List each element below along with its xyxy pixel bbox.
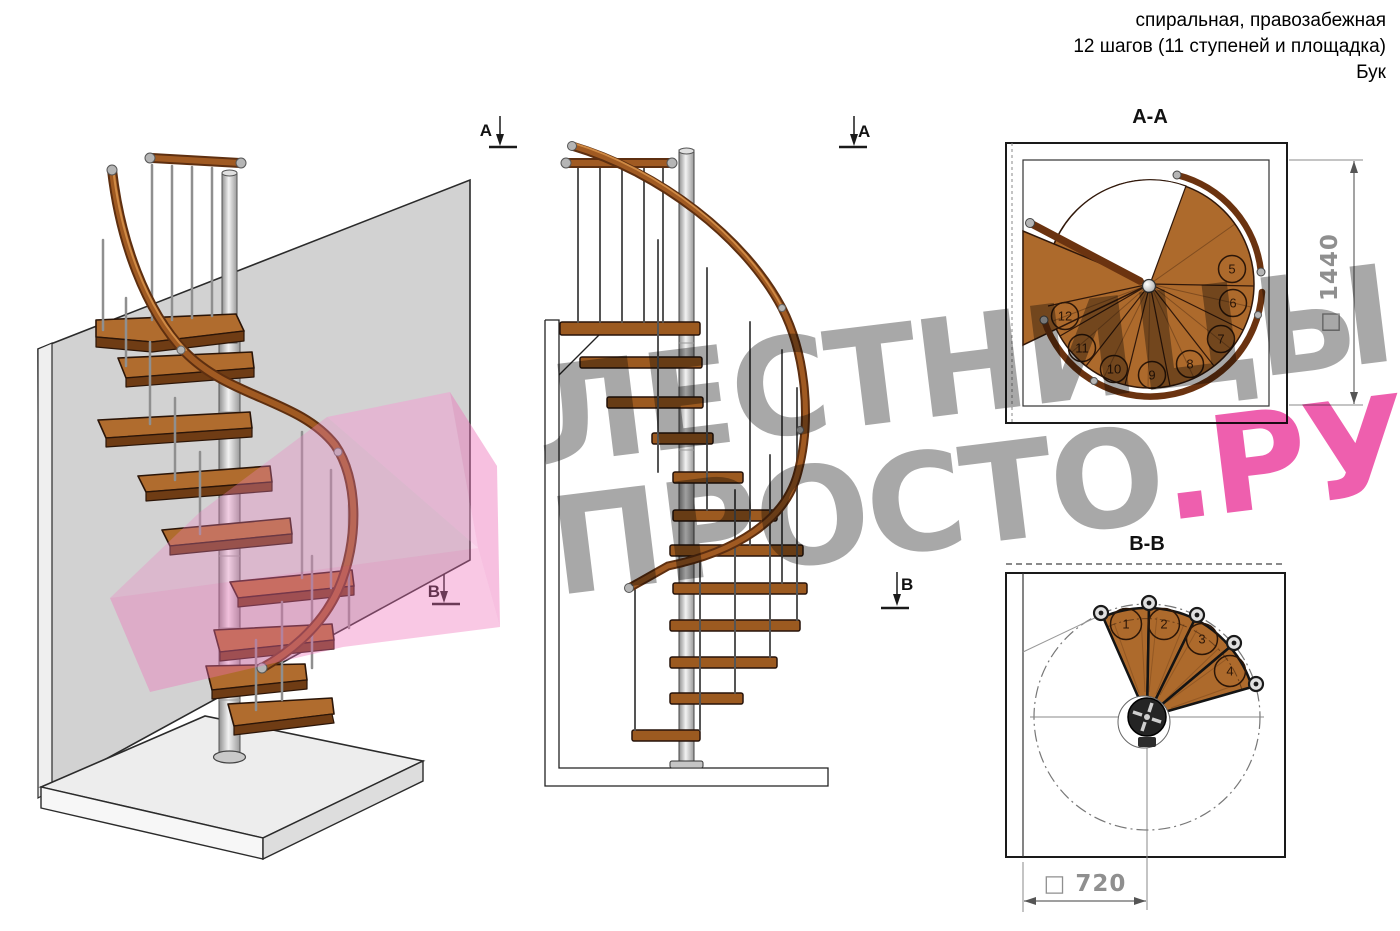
marker-b-left-label: В xyxy=(428,582,440,601)
plan-view-bb: В-В xyxy=(1006,533,1285,912)
step-number: 3 xyxy=(1198,632,1205,647)
drawing-canvas: А А В В А-А xyxy=(0,0,1400,931)
marker-a-right-label: А xyxy=(858,122,870,141)
steps-count-line: 12 шагов (11 ступеней и площадка) xyxy=(1073,34,1386,60)
iso-3d-view xyxy=(38,153,470,859)
marker-a-left-label: А xyxy=(480,121,492,140)
section-marker-a-right: А xyxy=(839,116,870,147)
step-number: 2 xyxy=(1160,617,1167,632)
watermark-line2-pink: .РУ xyxy=(1152,366,1400,552)
step-number: 4 xyxy=(1226,664,1233,679)
material-line: Бук xyxy=(1073,60,1386,86)
stair-type-line: спиральная, правозабежная xyxy=(1073,8,1386,34)
plan-aa-title: А-А xyxy=(1132,106,1168,128)
dimension-720: □ 720 xyxy=(1044,871,1127,897)
title-block: спиральная, правозабежная 12 шагов (11 с… xyxy=(1073,8,1386,86)
plan-bb-hub xyxy=(1118,696,1170,748)
step-number: 1 xyxy=(1122,617,1129,632)
plan-bb-dimension: □ 720 xyxy=(1023,862,1146,912)
section-marker-a-left: А xyxy=(480,116,517,147)
wall-edge xyxy=(38,343,52,798)
